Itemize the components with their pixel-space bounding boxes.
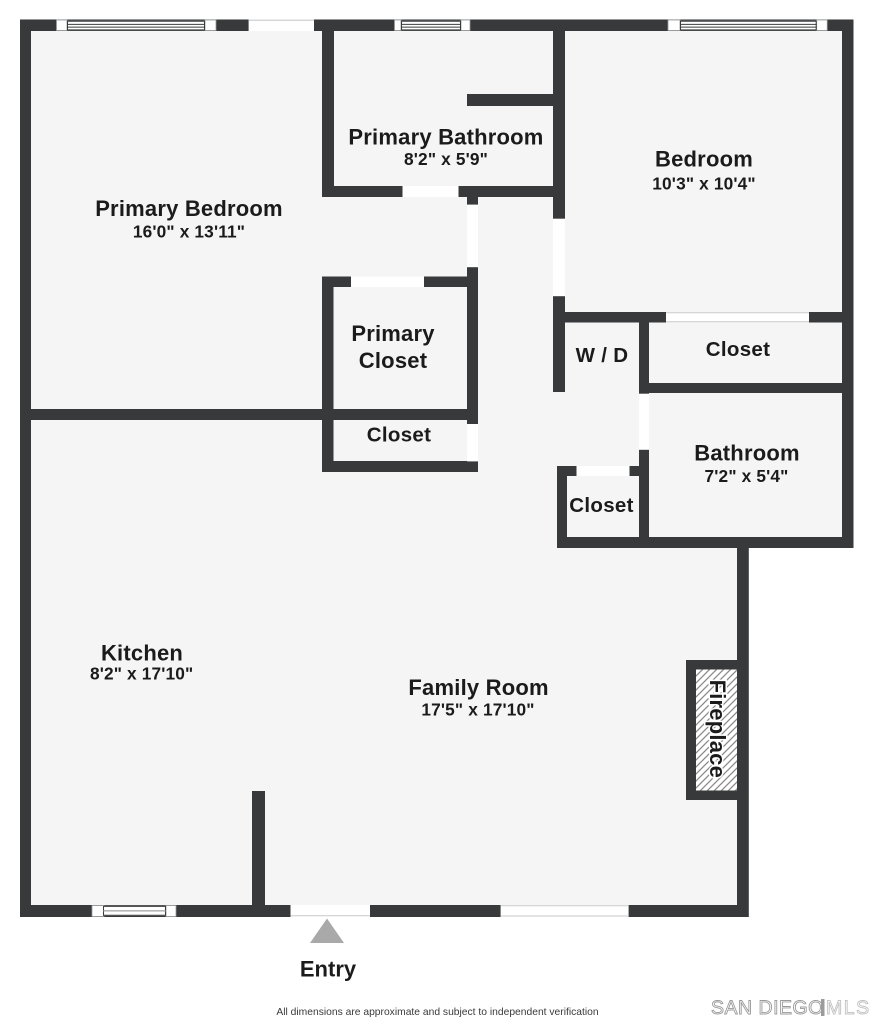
svg-text:Primary: Primary xyxy=(351,321,435,346)
svg-text:Closet: Closet xyxy=(359,348,428,373)
svg-text:Family Room: Family Room xyxy=(408,675,548,700)
svg-text:Closet: Closet xyxy=(367,424,431,447)
svg-text:Closet: Closet xyxy=(706,338,770,361)
svg-text:Kitchen: Kitchen xyxy=(101,641,183,666)
svg-text:Fireplace: Fireplace xyxy=(705,680,730,778)
svg-text:16'0" x 13'11": 16'0" x 13'11" xyxy=(133,222,245,242)
svg-text:SAN DIEGO: SAN DIEGO xyxy=(711,997,824,1019)
svg-text:8'2" x 17'10": 8'2" x 17'10" xyxy=(90,664,193,684)
svg-text:All dimensions are approximate: All dimensions are approximate and subje… xyxy=(276,1007,599,1018)
svg-text:MLS: MLS xyxy=(826,997,871,1019)
svg-text:17'5" x 17'10": 17'5" x 17'10" xyxy=(421,700,534,720)
svg-text:Entry: Entry xyxy=(300,957,357,982)
svg-text:8'2" x 5'9": 8'2" x 5'9" xyxy=(404,149,488,169)
svg-text:Bedroom: Bedroom xyxy=(655,147,753,172)
svg-text:Primary Bathroom: Primary Bathroom xyxy=(348,125,543,150)
svg-text:W / D: W / D xyxy=(576,344,629,367)
svg-text:7'2" x 5'4": 7'2" x 5'4" xyxy=(705,466,789,486)
svg-text:10'3" x 10'4": 10'3" x 10'4" xyxy=(652,174,755,194)
svg-text:Bathroom: Bathroom xyxy=(694,441,800,466)
svg-text:Closet: Closet xyxy=(569,494,633,517)
svg-text:Primary Bedroom: Primary Bedroom xyxy=(95,196,283,221)
